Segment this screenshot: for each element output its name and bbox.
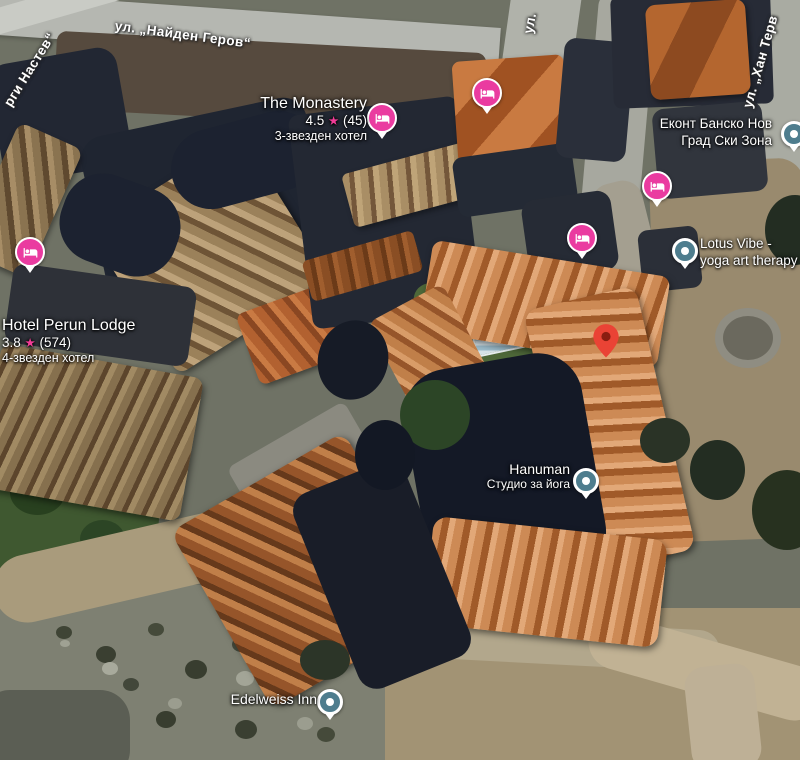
dot-icon [582,477,590,485]
place-label-edelweiss-inn[interactable]: Edelweiss Inn [231,691,317,707]
place-name: Edelweiss Inn [231,691,317,707]
bed-icon [650,179,665,194]
dot-icon [681,247,689,255]
building-roof [645,0,751,100]
dot-icon [790,130,798,138]
poi-marker-ekont[interactable] [781,121,800,152]
poi-marker-edelweiss-inn[interactable] [317,689,343,720]
bed-icon [575,231,590,246]
hotel-marker-circle [642,171,672,201]
place-label-lotus-vibe[interactable]: Lotus Vibe - yoga art therapy [700,236,798,269]
hotel-marker[interactable] [567,223,597,259]
marker-pointer [577,252,587,259]
tree [690,440,745,500]
poi-marker-circle [317,689,343,715]
hotel-marker-circle [567,223,597,253]
hotel-marker[interactable] [472,78,502,114]
bed-icon [375,111,390,126]
stone-circle [715,308,781,368]
place-label-hanuman[interactable]: Hanuman Студио за йога [487,461,570,491]
review-count: (45) [343,113,367,128]
place-label-ekont[interactable]: Еконт Банско Нов Град Ски Зона [660,116,772,149]
place-subtitle: 4-звезден хотел [2,351,135,366]
tree [300,640,350,680]
place-label-the-monastery[interactable]: The Monastery 4.5 ★ (45) 3-звезден хотел [260,94,367,144]
rating-line: 4.5 ★ (45) [260,113,367,129]
place-name-line2: Град Ски Зона [660,133,772,150]
place-name: Hanuman [487,461,570,477]
poi-marker-circle [672,238,698,264]
rock-dots [60,640,70,647]
place-subtitle: Студио за йога [487,477,570,491]
marker-pointer [790,146,799,152]
place-label-hotel-perun-lodge[interactable]: Hotel Perun Lodge 3.8 ★ (574) 4-звезден … [2,316,135,366]
tree [640,418,690,463]
marker-pointer [377,132,387,139]
dot-icon [326,698,334,706]
poi-marker-circle [781,121,800,147]
hotel-marker[interactable] [367,103,397,139]
bed-icon [480,86,495,101]
place-name: Hotel Perun Lodge [2,316,135,335]
tree [355,420,415,490]
rating-line: 3.8 ★ (574) [2,335,135,351]
satellite-map-canvas[interactable]: ул. „Найден Геров“ рги Настев“ ул. ул. „… [0,0,800,760]
place-name-line2: yoga art therapy [700,253,798,270]
place-subtitle: 3-звезден хотел [260,129,367,144]
building-roof [0,343,204,521]
footpath [683,662,764,760]
marker-pointer [25,266,35,273]
hotel-marker-circle [472,78,502,108]
review-count: (574) [40,335,72,350]
star-icon: ★ [328,114,339,128]
place-name-line1: Lotus Vibe - [700,236,798,253]
bed-icon [23,245,38,260]
poi-marker-circle [573,468,599,494]
hotel-marker-circle [367,103,397,133]
hotel-marker-circle [15,237,45,267]
place-name: The Monastery [260,94,367,113]
marker-pointer [582,493,591,499]
pin-icon [587,321,625,359]
terrain-dark-corner [0,690,130,760]
star-icon: ★ [25,336,36,350]
marker-pointer [652,200,662,207]
marker-pointer [326,714,335,720]
hotel-marker[interactable] [15,237,45,273]
poi-marker-lotus-vibe[interactable] [672,238,698,269]
red-location-pin[interactable] [587,321,625,364]
rating-value: 3.8 [2,335,21,350]
place-name-line1: Еконт Банско Нов [660,116,772,133]
poi-marker-hanuman[interactable] [573,468,599,499]
rating-value: 4.5 [305,113,324,128]
hotel-marker[interactable] [642,171,672,207]
marker-pointer [681,263,690,269]
marker-pointer [482,107,492,114]
